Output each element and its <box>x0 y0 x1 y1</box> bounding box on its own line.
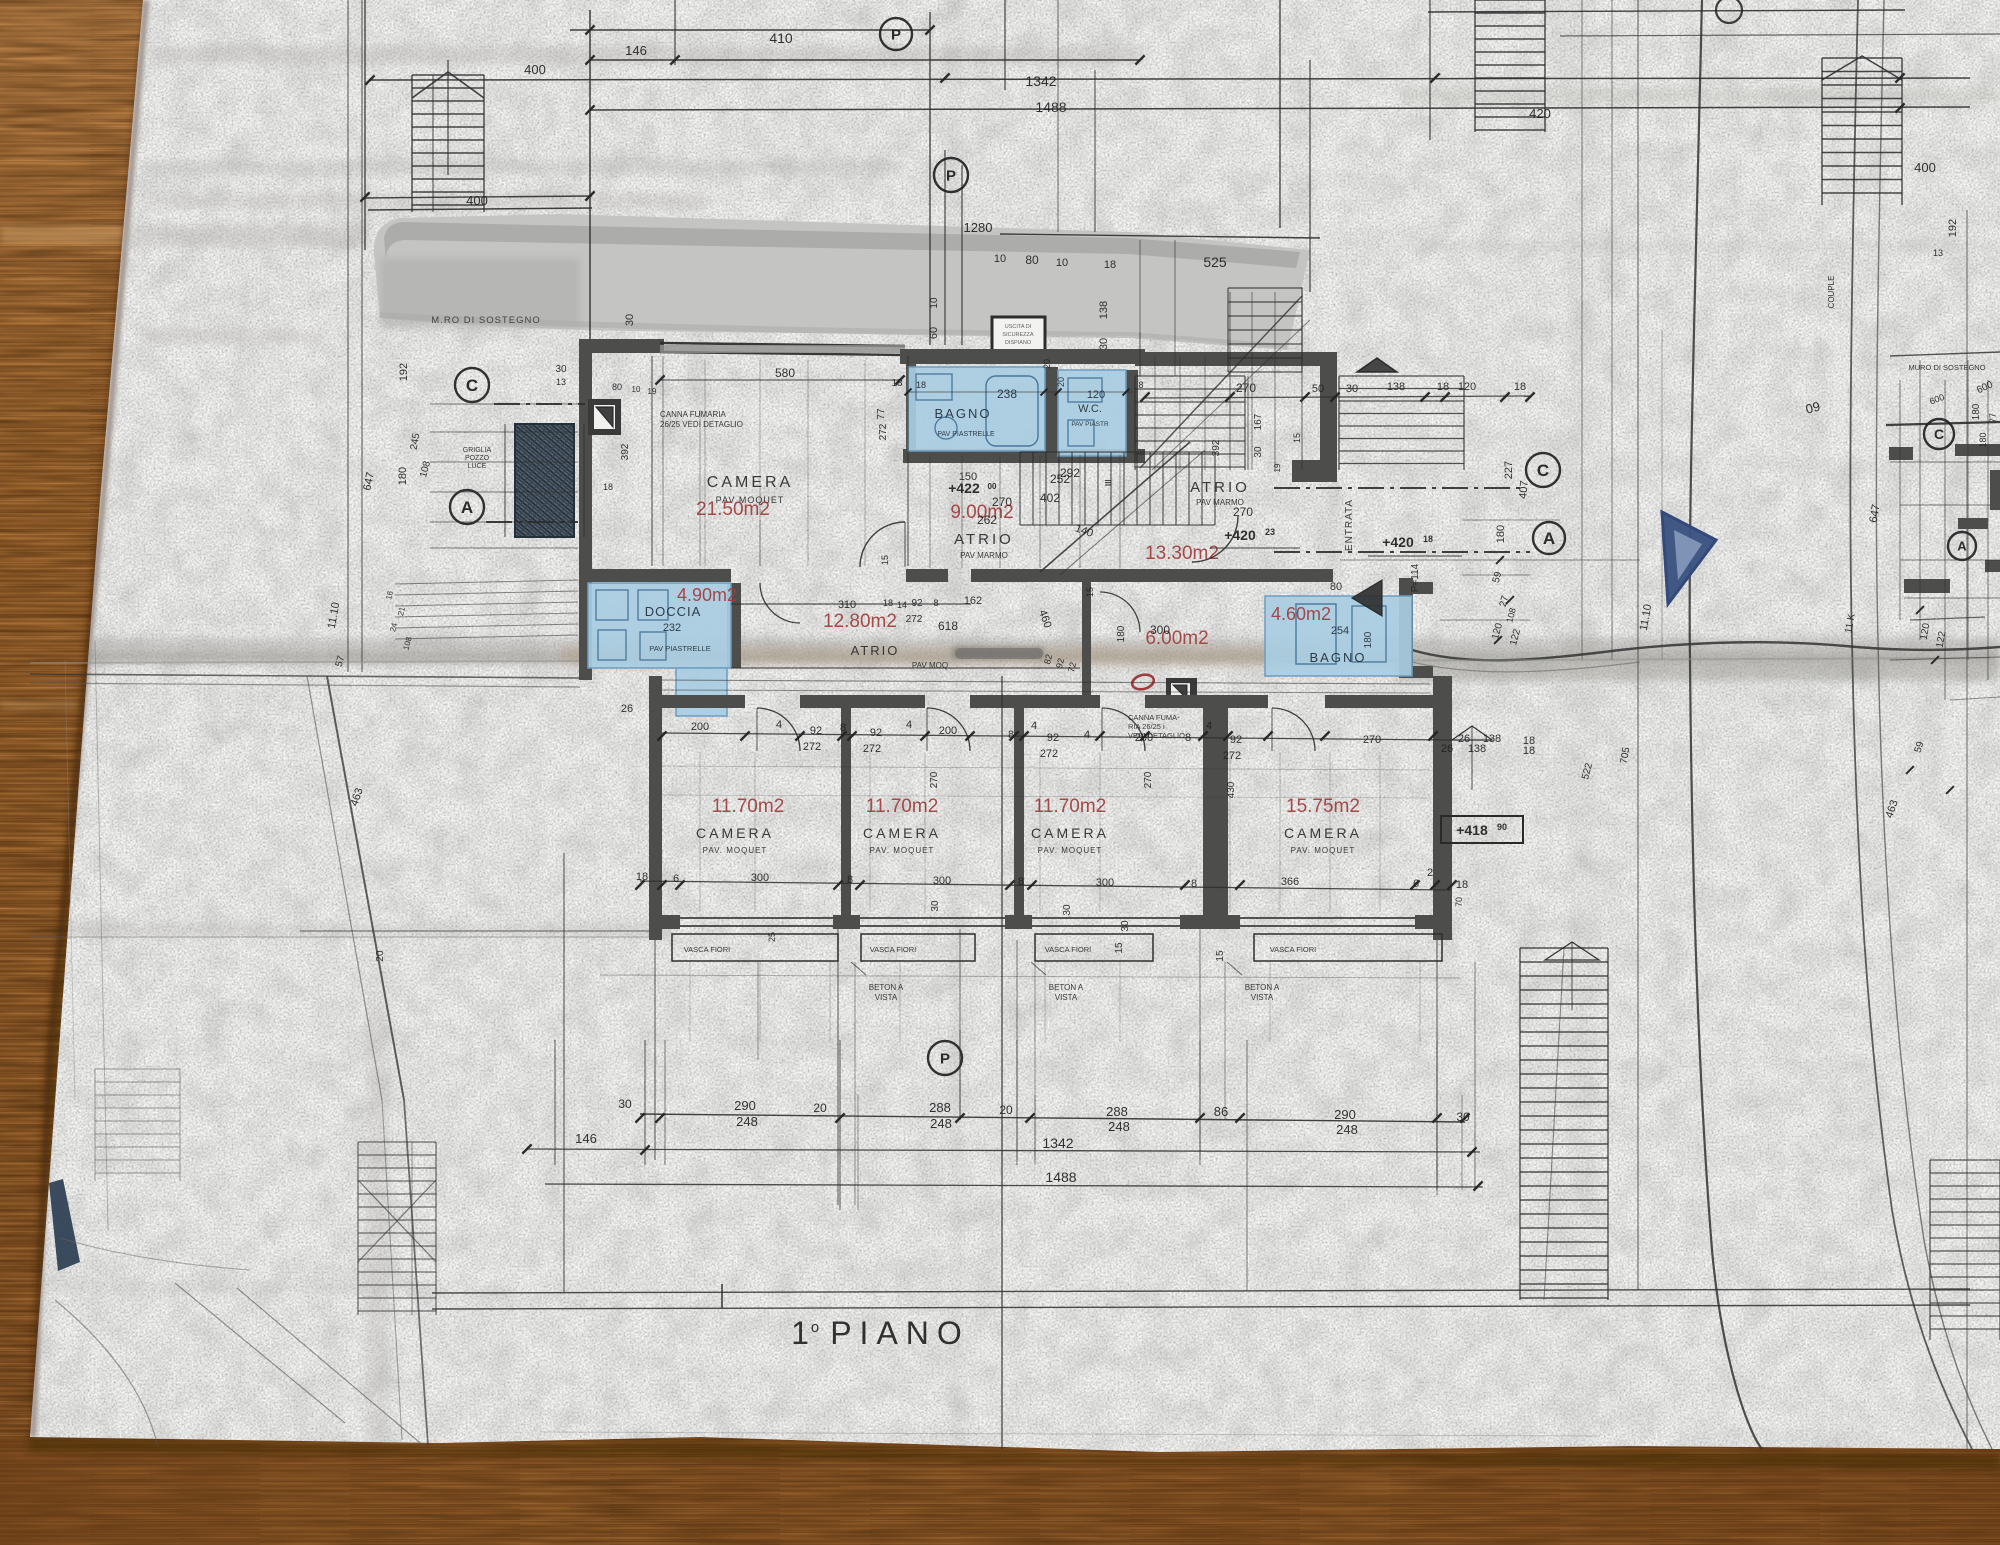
svg-text:70: 70 <box>1454 897 1464 907</box>
svg-text:162: 162 <box>964 595 982 607</box>
svg-text:10: 10 <box>632 385 641 394</box>
svg-text:272: 272 <box>863 743 881 755</box>
svg-text:A: A <box>461 498 473 517</box>
svg-text:26: 26 <box>621 703 633 715</box>
svg-text:PAV. MOQUET: PAV. MOQUET <box>703 846 768 855</box>
svg-text:30: 30 <box>1346 383 1358 395</box>
svg-text:120: 120 <box>1087 389 1105 401</box>
svg-text:20: 20 <box>1042 359 1052 369</box>
svg-text:PAV. MOQUET: PAV. MOQUET <box>1038 846 1103 855</box>
svg-text:92: 92 <box>1047 732 1059 744</box>
svg-text:248: 248 <box>930 1116 952 1131</box>
svg-text:VISTA: VISTA <box>1055 993 1078 1002</box>
svg-text:180: 180 <box>1971 403 1982 420</box>
svg-text:4: 4 <box>1206 720 1212 732</box>
svg-text:6: 6 <box>1413 878 1419 890</box>
svg-text:402: 402 <box>1040 491 1060 505</box>
svg-text:618: 618 <box>938 619 958 633</box>
svg-text:300: 300 <box>1096 877 1114 889</box>
svg-text:PIANO: PIANO <box>830 1315 970 1351</box>
svg-text:BAGNO: BAGNO <box>935 406 992 421</box>
svg-text:P=114: P=114 <box>1410 563 1421 592</box>
svg-text:4: 4 <box>1031 720 1037 732</box>
svg-text:18: 18 <box>1514 381 1526 393</box>
svg-text:180: 180 <box>1116 625 1127 642</box>
svg-text:W.C.: W.C. <box>1078 403 1102 415</box>
svg-text:6: 6 <box>673 873 679 885</box>
svg-text:272: 272 <box>878 423 889 440</box>
svg-text:PAV MOQ: PAV MOQ <box>912 661 948 670</box>
svg-text:300: 300 <box>933 875 951 887</box>
svg-text:30: 30 <box>930 900 941 912</box>
svg-text:18: 18 <box>1437 381 1449 393</box>
svg-text:366: 366 <box>1281 876 1299 888</box>
svg-text:180: 180 <box>397 467 409 485</box>
svg-text:30: 30 <box>1098 338 1110 350</box>
svg-text:15: 15 <box>1292 433 1302 443</box>
svg-text:1280: 1280 <box>964 220 993 235</box>
svg-text:11.70m2: 11.70m2 <box>1034 796 1107 817</box>
svg-text:12.80m2: 12.80m2 <box>823 611 897 632</box>
svg-text:20: 20 <box>375 950 386 962</box>
svg-text:8: 8 <box>1185 732 1191 744</box>
svg-text:8: 8 <box>933 598 938 608</box>
svg-text:272: 272 <box>1223 750 1241 762</box>
svg-text:19: 19 <box>648 387 657 396</box>
svg-text:180: 180 <box>1363 631 1374 648</box>
svg-text:10: 10 <box>994 253 1006 265</box>
svg-text:262: 262 <box>977 513 997 527</box>
svg-text:13: 13 <box>1933 248 1943 258</box>
svg-text:400: 400 <box>1914 160 1936 175</box>
svg-text:30: 30 <box>1456 1110 1470 1124</box>
svg-text:+420: +420 <box>1224 527 1256 543</box>
svg-text:525: 525 <box>1203 254 1227 270</box>
svg-text:18: 18 <box>891 378 903 389</box>
svg-text:30: 30 <box>618 1097 632 1111</box>
svg-text:4: 4 <box>776 719 782 731</box>
svg-text:21.50m2: 21.50m2 <box>696 499 770 520</box>
svg-text:8: 8 <box>1191 878 1197 890</box>
svg-text:BETON A: BETON A <box>1245 983 1280 992</box>
svg-text:200: 200 <box>1135 732 1153 744</box>
svg-text:M.RO DI SOSTEGNO: M.RO DI SOSTEGNO <box>431 315 540 326</box>
svg-text:GRIGLIA: GRIGLIA <box>463 447 492 454</box>
svg-text:80: 80 <box>612 382 622 392</box>
svg-text:4.60m2: 4.60m2 <box>1271 604 1331 624</box>
svg-text:18: 18 <box>1523 745 1535 757</box>
svg-text:18: 18 <box>636 871 648 883</box>
svg-text:50: 50 <box>1312 383 1324 395</box>
svg-text:A: A <box>1957 539 1967 554</box>
svg-text:288: 288 <box>929 1100 951 1115</box>
svg-text:P: P <box>940 1050 950 1067</box>
svg-text:BETON A: BETON A <box>869 983 904 992</box>
svg-text:1488: 1488 <box>1045 1169 1076 1185</box>
svg-text:VISTA: VISTA <box>1251 993 1274 1002</box>
svg-text:13.30m2: 13.30m2 <box>1145 543 1219 564</box>
svg-text:A: A <box>1543 529 1555 548</box>
svg-text:26: 26 <box>1441 743 1453 755</box>
svg-text:272: 272 <box>803 741 821 753</box>
svg-text:138: 138 <box>1468 743 1486 755</box>
svg-text:BETON A: BETON A <box>1049 983 1084 992</box>
svg-text:18: 18 <box>1104 259 1116 271</box>
svg-text:18: 18 <box>1456 879 1468 891</box>
svg-text:ATRIO: ATRIO <box>954 531 1014 548</box>
svg-text:60: 60 <box>928 327 940 339</box>
svg-text:ENTRATA: ENTRATA <box>1344 499 1355 551</box>
svg-text:180: 180 <box>1978 432 1988 447</box>
svg-text:4: 4 <box>906 719 912 731</box>
svg-text:14: 14 <box>897 600 907 610</box>
svg-text:PAV PIASTRELLE: PAV PIASTRELLE <box>937 431 995 438</box>
svg-text:23: 23 <box>1265 527 1275 537</box>
svg-text:290: 290 <box>1334 1107 1356 1122</box>
svg-text:20: 20 <box>1056 377 1066 387</box>
svg-text:8: 8 <box>847 874 853 886</box>
svg-text:P: P <box>946 167 956 184</box>
svg-text:o: o <box>811 1319 819 1336</box>
svg-text:VASCA FIORI: VASCA FIORI <box>870 945 917 954</box>
svg-text:138: 138 <box>1098 301 1110 319</box>
svg-text:CAMERA: CAMERA <box>1031 825 1109 841</box>
svg-text:580: 580 <box>775 366 795 380</box>
svg-text:192: 192 <box>1947 219 1959 237</box>
svg-text:4: 4 <box>1084 729 1090 741</box>
svg-text:VASCA FIORI: VASCA FIORI <box>1045 945 1092 954</box>
svg-text:ATRIO: ATRIO <box>1190 479 1250 496</box>
svg-text:USCITA DI: USCITA DI <box>1005 324 1032 330</box>
svg-text:227: 227 <box>1503 461 1515 479</box>
svg-text:+418: +418 <box>1456 822 1488 838</box>
svg-text:POZZO: POZZO <box>465 455 490 462</box>
svg-text:90: 90 <box>1497 822 1507 832</box>
svg-text:+422: +422 <box>948 480 980 496</box>
svg-text:288: 288 <box>1106 1104 1128 1119</box>
svg-text:407: 407 <box>1517 480 1531 499</box>
svg-text:PAV MARMO: PAV MARMO <box>960 551 1008 560</box>
svg-text:15: 15 <box>1085 587 1095 597</box>
svg-text:77: 77 <box>876 408 887 420</box>
svg-text:ATRIO: ATRIO <box>851 643 900 658</box>
svg-text:200: 200 <box>691 721 709 733</box>
svg-text:4.90m2: 4.90m2 <box>677 585 737 605</box>
svg-text:270: 270 <box>1233 505 1253 519</box>
svg-text:167: 167 <box>1253 413 1264 430</box>
svg-text:1488: 1488 <box>1035 99 1066 115</box>
svg-text:8: 8 <box>840 722 846 734</box>
svg-text:20: 20 <box>999 1103 1013 1117</box>
svg-text:80: 80 <box>1330 581 1342 593</box>
svg-text:C: C <box>466 376 478 395</box>
svg-text:+420: +420 <box>1382 534 1414 550</box>
svg-text:30: 30 <box>624 314 636 326</box>
svg-text:PAV PIASTR: PAV PIASTR <box>1071 421 1109 428</box>
svg-text:200: 200 <box>939 725 957 737</box>
svg-text:272: 272 <box>906 614 923 625</box>
svg-text:252: 252 <box>1050 472 1070 486</box>
svg-text:11.70m2: 11.70m2 <box>712 796 785 817</box>
svg-text:CAMERA: CAMERA <box>707 474 793 491</box>
svg-text:11.70m2: 11.70m2 <box>866 796 939 817</box>
svg-text:13: 13 <box>556 377 566 387</box>
svg-text:232: 232 <box>663 622 681 634</box>
svg-text:248: 248 <box>1108 1119 1130 1134</box>
svg-text:PAV. MOQUET: PAV. MOQUET <box>1291 846 1356 855</box>
svg-text:VASCA FIORI: VASCA FIORI <box>1270 945 1317 954</box>
svg-text:86: 86 <box>1214 1104 1228 1119</box>
svg-text:RIA 26/25 i: RIA 26/25 i <box>1128 722 1165 731</box>
svg-text:92: 92 <box>911 598 923 609</box>
svg-text:8: 8 <box>1008 729 1014 741</box>
svg-text:DISPIANO: DISPIANO <box>1005 340 1032 346</box>
svg-text:270: 270 <box>1143 771 1154 788</box>
svg-text:290: 290 <box>734 1098 756 1113</box>
svg-text:19: 19 <box>1273 463 1282 472</box>
svg-text:COUPLE: COUPLE <box>1827 276 1836 309</box>
svg-text:430: 430 <box>1226 781 1237 798</box>
svg-text:26/25 VEDI DETAGLIO: 26/25 VEDI DETAGLIO <box>660 420 743 429</box>
svg-text:DOCCIA: DOCCIA <box>645 604 702 619</box>
svg-text:P: P <box>891 26 901 43</box>
svg-text:30: 30 <box>1253 446 1264 458</box>
svg-text:15: 15 <box>880 555 890 565</box>
svg-text:138: 138 <box>1387 381 1405 393</box>
svg-text:PAV PIASTRELLE: PAV PIASTRELLE <box>649 644 710 653</box>
svg-text:1: 1 <box>791 1315 809 1351</box>
svg-text:92: 92 <box>870 727 882 739</box>
svg-text:420: 420 <box>1529 106 1551 121</box>
svg-text:270: 270 <box>992 495 1012 509</box>
svg-text:18: 18 <box>883 598 893 608</box>
svg-text:SICUREZZA: SICUREZZA <box>1002 332 1034 338</box>
svg-text:400: 400 <box>524 62 546 77</box>
svg-text:30: 30 <box>1120 920 1131 932</box>
svg-text:80: 80 <box>1025 253 1039 267</box>
svg-text:392: 392 <box>620 443 631 460</box>
svg-text:30: 30 <box>555 364 567 375</box>
svg-text:92: 92 <box>810 725 822 737</box>
svg-text:310: 310 <box>838 599 856 611</box>
svg-text:C: C <box>1537 461 1549 480</box>
svg-text:270: 270 <box>1363 734 1381 746</box>
svg-text:CAMERA: CAMERA <box>863 825 941 841</box>
svg-text:192: 192 <box>398 363 410 381</box>
svg-text:LUCE: LUCE <box>468 463 487 470</box>
svg-text:≡: ≡ <box>1104 475 1112 490</box>
svg-text:15: 15 <box>1114 942 1125 954</box>
svg-text:8: 8 <box>1138 380 1143 390</box>
svg-text:18: 18 <box>916 380 926 390</box>
svg-text:15.75m2: 15.75m2 <box>1286 796 1360 817</box>
svg-text:00: 00 <box>988 482 997 491</box>
svg-text:254: 254 <box>1331 625 1349 637</box>
svg-text:2: 2 <box>1427 867 1433 879</box>
svg-text:CAMERA: CAMERA <box>696 825 774 841</box>
svg-text:VASCA FIORI: VASCA FIORI <box>684 945 731 954</box>
svg-text:18: 18 <box>1423 534 1433 544</box>
svg-text:CANNA FUMARIA: CANNA FUMARIA <box>660 410 726 419</box>
svg-text:C: C <box>1934 426 1944 442</box>
svg-text:15: 15 <box>1215 950 1226 962</box>
svg-text:120: 120 <box>1458 381 1476 393</box>
svg-text:146: 146 <box>625 43 647 58</box>
svg-text:248: 248 <box>1336 1122 1358 1137</box>
svg-text:300: 300 <box>1150 623 1170 637</box>
svg-text:CANNA FUMA-: CANNA FUMA- <box>1128 713 1180 722</box>
svg-text:1342: 1342 <box>1025 73 1056 89</box>
svg-text:248: 248 <box>736 1114 758 1129</box>
svg-text:25: 25 <box>767 932 777 942</box>
svg-text:238: 238 <box>997 387 1017 401</box>
svg-text:146: 146 <box>575 1131 597 1146</box>
svg-text:1342: 1342 <box>1042 1135 1073 1151</box>
svg-text:410: 410 <box>769 30 793 46</box>
svg-text:272: 272 <box>1040 748 1058 760</box>
svg-text:20: 20 <box>813 1101 827 1115</box>
svg-text:CAMERA: CAMERA <box>1284 825 1362 841</box>
svg-text:10: 10 <box>929 297 940 309</box>
svg-text:VISTA: VISTA <box>875 993 898 1002</box>
svg-text:BAGNO: BAGNO <box>1310 650 1367 665</box>
svg-text:180: 180 <box>1495 525 1507 543</box>
svg-text:300: 300 <box>751 872 769 884</box>
svg-text:30: 30 <box>1062 904 1073 916</box>
svg-text:92: 92 <box>1230 734 1242 746</box>
svg-text:270: 270 <box>929 771 940 788</box>
svg-text:10: 10 <box>1056 257 1068 269</box>
svg-text:8: 8 <box>1018 876 1024 888</box>
svg-text:18: 18 <box>603 482 613 492</box>
